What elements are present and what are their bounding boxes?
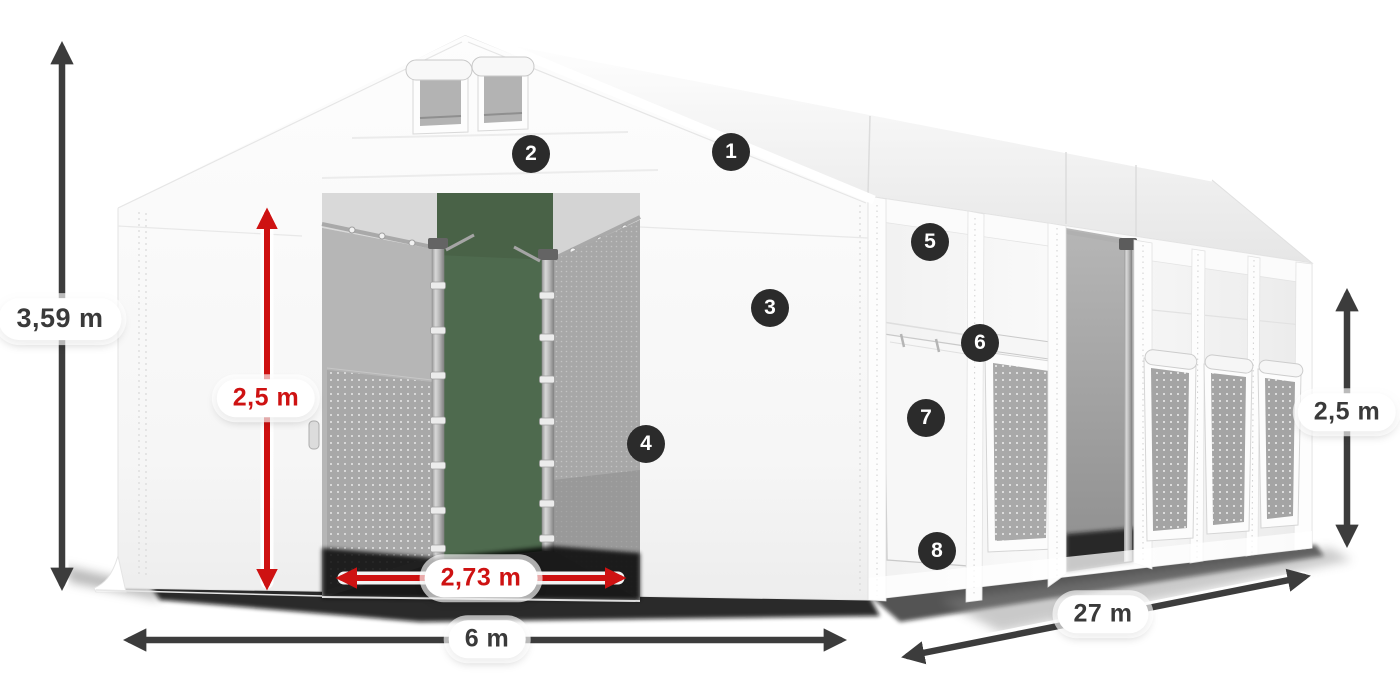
window-roll-cover [472, 57, 534, 76]
tent-illustration [0, 0, 1400, 700]
tent-dimension-diagram: 3,59 m 2,5 m 2,73 m 6 m 27 m 2,5 m 1 2 3… [0, 0, 1400, 700]
dimension-label-side-length: 27 m [1058, 595, 1149, 633]
passage-pole [1124, 244, 1132, 562]
feature-marker-2: 2 [512, 135, 550, 173]
dimension-label-front-width: 6 m [449, 620, 526, 658]
gable-window-left [406, 60, 472, 134]
dimension-label-entrance-width: 2,73 m [425, 559, 538, 597]
gable-window-right [472, 57, 534, 131]
feature-marker-3: 3 [751, 289, 789, 327]
feature-marker-7: 7 [907, 399, 945, 437]
door-handle [309, 421, 319, 449]
window-roll-cover [406, 60, 472, 80]
entrance-opening [322, 193, 640, 601]
feature-marker-5: 5 [911, 223, 949, 261]
side-door [884, 334, 972, 566]
side-window-mesh [985, 333, 1057, 552]
middle-passage-opening [1066, 228, 1137, 572]
dimension-label-side-wall-height: 2,5 m [1298, 393, 1396, 431]
feature-marker-4: 4 [627, 425, 665, 463]
feature-marker-6: 6 [961, 324, 999, 362]
rear-windows [1144, 349, 1304, 541]
dimension-label-entrance-height: 2,5 m [217, 379, 315, 417]
dimension-label-total-height: 3,59 m [0, 298, 122, 340]
feature-marker-1: 1 [712, 133, 750, 171]
feature-marker-8: 8 [918, 532, 956, 570]
